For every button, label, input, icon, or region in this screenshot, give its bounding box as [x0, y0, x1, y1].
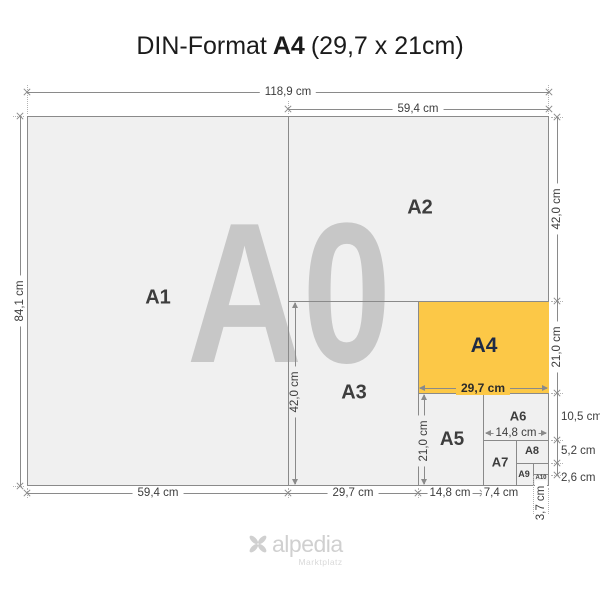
- label-a5: A5: [440, 429, 464, 451]
- logo-text: alpedia Marktplatz: [272, 533, 343, 567]
- extension-line: [548, 488, 549, 514]
- dim-label-a5-width: 14,8 cm: [428, 487, 473, 499]
- dim-tick: [545, 88, 554, 97]
- label-a1: A1: [145, 287, 171, 310]
- label-a3: A3: [341, 382, 367, 405]
- dim-label-a6-height: 10,5 cm: [561, 411, 600, 423]
- arrowhead-down: [292, 479, 298, 485]
- label-a4: A4: [471, 334, 498, 358]
- label-a2: A2: [407, 197, 433, 220]
- title-prefix: DIN-Format: [136, 32, 267, 60]
- extension-line: [533, 476, 534, 514]
- arrowhead-left: [419, 385, 425, 391]
- dim-label-a1-width: 59,4 cm: [133, 487, 184, 499]
- dim-tick: [23, 88, 32, 97]
- dim-tick: [23, 489, 32, 498]
- arrowhead-down: [421, 479, 427, 485]
- dim-tick: [553, 459, 562, 468]
- dim-label-a3-width: 29,7 cm: [328, 487, 379, 499]
- dim-label-a0-width: 118,9 cm: [260, 86, 316, 98]
- dim-tick: [553, 297, 562, 306]
- dim-tick: [284, 489, 293, 498]
- dim-label-a2-height: 42,0 cm: [551, 184, 563, 235]
- dim-label-a8-height: 5,2 cm: [561, 445, 596, 457]
- label-a9: A9: [518, 469, 530, 479]
- logo-tagline: Marktplatz: [272, 557, 343, 567]
- logo: alpedia Marktplatz: [247, 533, 343, 567]
- dim-label-a7-width: 7,4 cm: [482, 487, 521, 499]
- label-a7: A7: [492, 455, 509, 470]
- dim-label-a4-width: 29,7 cm: [456, 381, 510, 395]
- dim-label-a6-width: 14,8 cm: [494, 427, 539, 439]
- din-format-diagram: DIN-FormatA4(29,7 x 21cm) A0 A1 A2 A3 A4…: [0, 0, 600, 600]
- dim-label-a10-width: 3,7 cm: [535, 481, 547, 526]
- dim-tick: [553, 436, 562, 445]
- dim-label-a2-width: 59,4 cm: [393, 103, 444, 115]
- dim-tick: [553, 113, 562, 122]
- label-a6: A6: [510, 409, 527, 424]
- dim-tick: [16, 112, 25, 121]
- arrowhead-right: [541, 430, 547, 436]
- dim-label-a10-height: 2,6 cm: [561, 472, 596, 484]
- arrowhead-right: [542, 385, 548, 391]
- arrowhead-up: [292, 302, 298, 308]
- dim-label-a0-height: 84,1 cm: [14, 276, 26, 327]
- dim-tick: [553, 389, 562, 398]
- logo-name: alpedia: [272, 533, 343, 556]
- arrowhead-left: [485, 430, 491, 436]
- clover-icon: [247, 533, 269, 560]
- title-format: A4: [273, 32, 305, 60]
- dim-label-a5-height: 21,0 cm: [418, 416, 430, 467]
- dim-tick: [284, 105, 293, 114]
- page-title: DIN-FormatA4(29,7 x 21cm): [0, 32, 600, 61]
- dim-tick: [414, 489, 423, 498]
- watermark-a0: A0: [187, 194, 392, 394]
- dim-label-a3-height: 42,0 cm: [289, 367, 301, 418]
- dim-label-a4-height: 21,0 cm: [551, 322, 563, 373]
- arrowhead-up: [421, 394, 427, 400]
- title-size: (29,7 x 21cm): [311, 32, 464, 60]
- label-a8: A8: [525, 445, 539, 457]
